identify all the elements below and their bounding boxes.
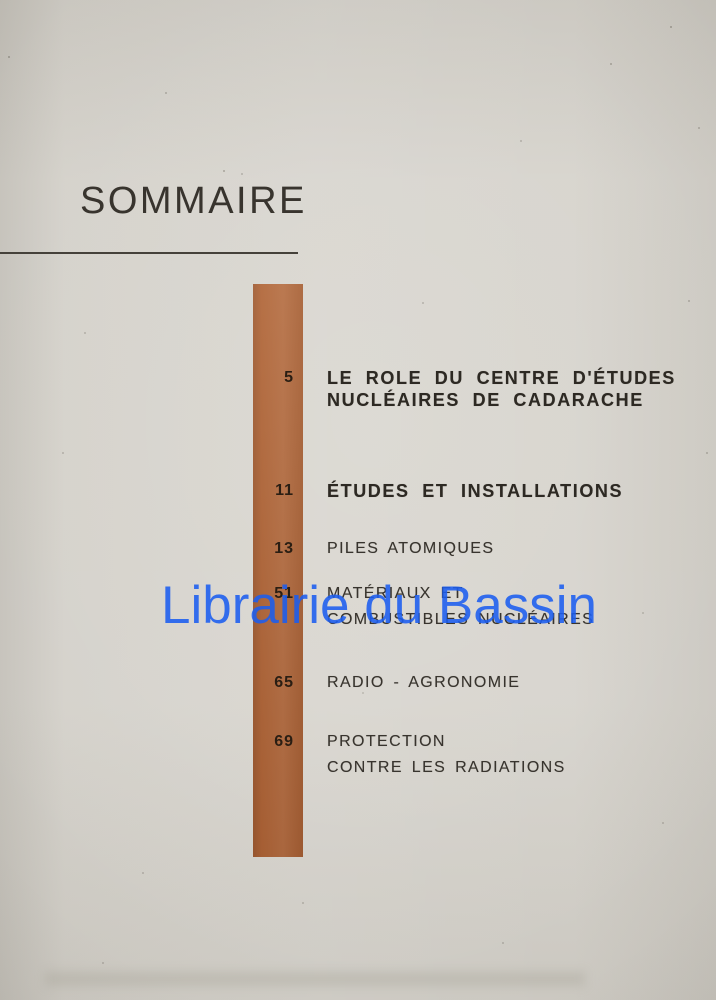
toc-entry-line: CONTRE LES RADIATIONS: [327, 755, 687, 781]
toc-entry-line: NUCLÉAIRES DE CADARACHE: [327, 389, 687, 411]
toc-entry-line: LE ROLE DU CENTRE D'ÉTUDES: [327, 367, 687, 389]
toc-entry-title: RADIO - AGRONOMIE: [327, 670, 687, 696]
toc-entry-line: ÉTUDES ET INSTALLATIONS: [327, 480, 687, 502]
watermark: Librairie du Bassin: [161, 579, 597, 632]
toc-entry-line: PILES ATOMIQUES: [327, 536, 687, 562]
toc-entry-title: PROTECTIONCONTRE LES RADIATIONS: [327, 729, 687, 781]
toc-page-number: 11: [253, 480, 294, 502]
toc-page-number: 13: [253, 536, 294, 562]
toc-entry-title: LE ROLE DU CENTRE D'ÉTUDESNUCLÉAIRES DE …: [327, 367, 687, 411]
toc-rows: 5LE ROLE DU CENTRE D'ÉTUDESNUCLÉAIRES DE…: [0, 0, 716, 1000]
toc-entry-title: PILES ATOMIQUES: [327, 536, 687, 562]
toc-page-number: 5: [253, 367, 294, 389]
toc-entry-line: PROTECTION: [327, 729, 687, 755]
toc-page-number: 65: [253, 670, 294, 696]
toc-entry-title: ÉTUDES ET INSTALLATIONS: [327, 480, 687, 502]
scanned-book-page: SOMMAIRE 5LE ROLE DU CENTRE D'ÉTUDESNUCL…: [0, 0, 716, 1000]
toc-entry-line: RADIO - AGRONOMIE: [327, 670, 687, 696]
toc-page-number: 69: [253, 729, 294, 755]
